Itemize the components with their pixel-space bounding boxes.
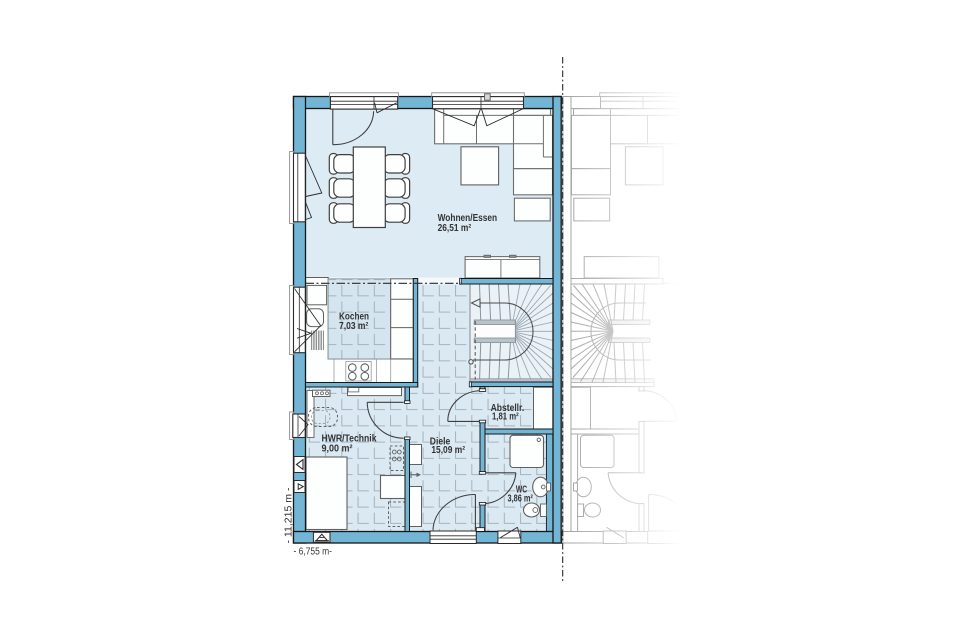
svg-text:7,03 m²: 7,03 m² bbox=[339, 321, 369, 332]
svg-text:1,81 m²: 1,81 m² bbox=[492, 412, 519, 423]
svg-text:26,51 m²: 26,51 m² bbox=[438, 223, 472, 234]
svg-text:3,86 m²: 3,86 m² bbox=[508, 493, 534, 504]
svg-text:- 6,755 m-: - 6,755 m- bbox=[294, 546, 333, 557]
svg-text:9,00 m²: 9,00 m² bbox=[322, 443, 354, 454]
svg-text:- 11,215 m -: - 11,215 m - bbox=[283, 488, 294, 544]
svg-text:15,09 m²: 15,09 m² bbox=[431, 445, 465, 456]
